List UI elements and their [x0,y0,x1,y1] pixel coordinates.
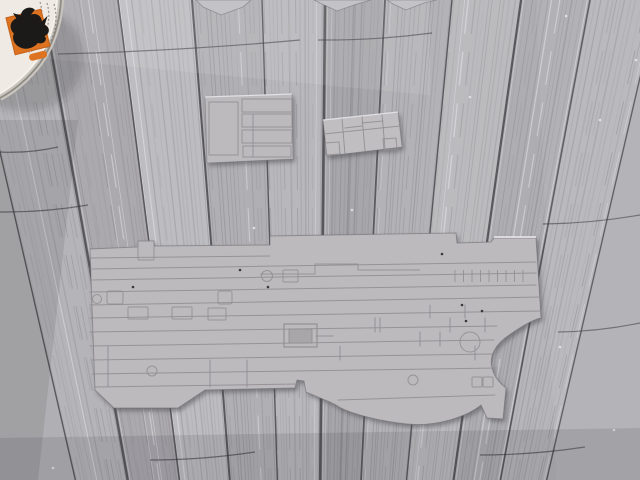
drill-dot [132,286,135,289]
piece-body [205,94,293,163]
elevator-opening-well [289,329,312,343]
photo-canvas [0,0,640,480]
deck-piece-large [90,233,541,425]
paint-fleck [351,209,354,212]
paint-fleck [469,96,472,99]
deck-piece-small-right [323,112,402,156]
drill-dot [267,286,270,289]
paint-fleck [253,227,256,230]
drill-dot [481,310,484,313]
drill-dot [465,320,468,323]
drill-dot [461,304,464,307]
photo-scene [0,0,640,480]
deck-piece-small-left [205,94,293,163]
drill-dot [239,269,242,272]
drill-dot [441,253,444,256]
